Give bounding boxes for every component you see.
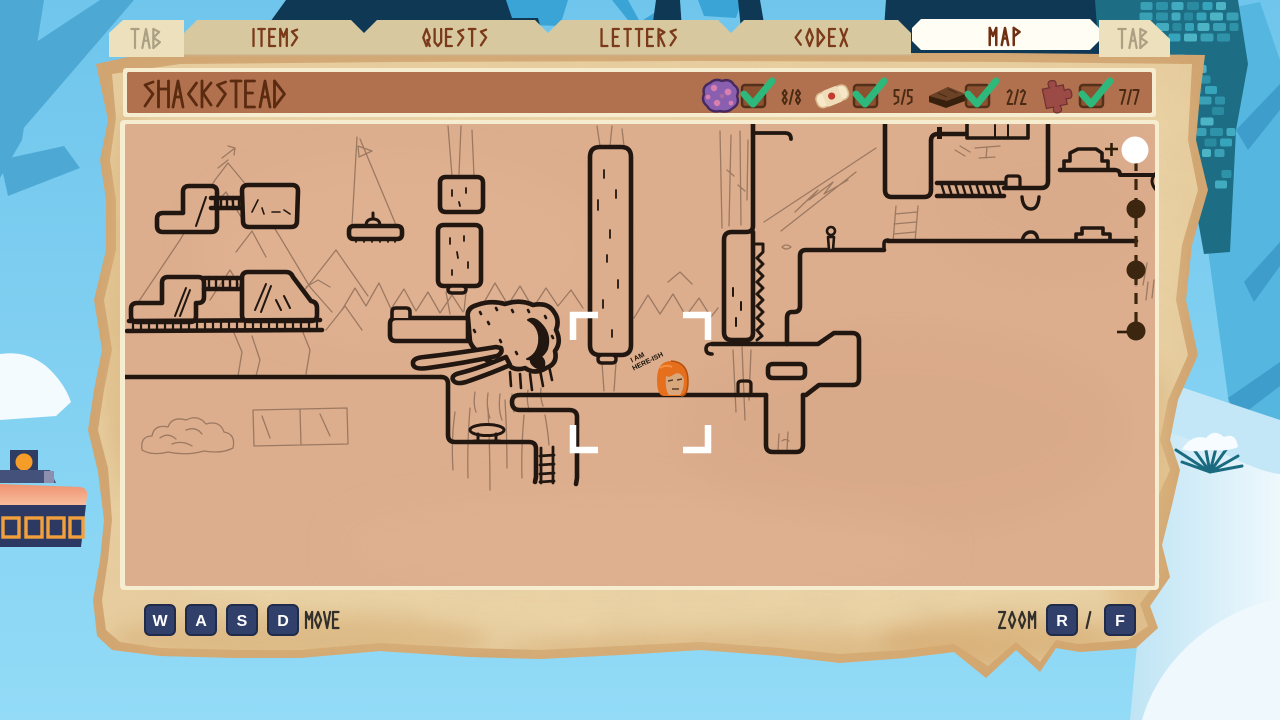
svg-text:R: R — [1056, 613, 1068, 630]
svg-text:W: W — [152, 613, 168, 630]
svg-text:A: A — [195, 613, 207, 630]
svg-text:S: S — [237, 613, 248, 630]
svg-text:F: F — [1115, 613, 1125, 630]
svg-text:D: D — [277, 613, 289, 630]
